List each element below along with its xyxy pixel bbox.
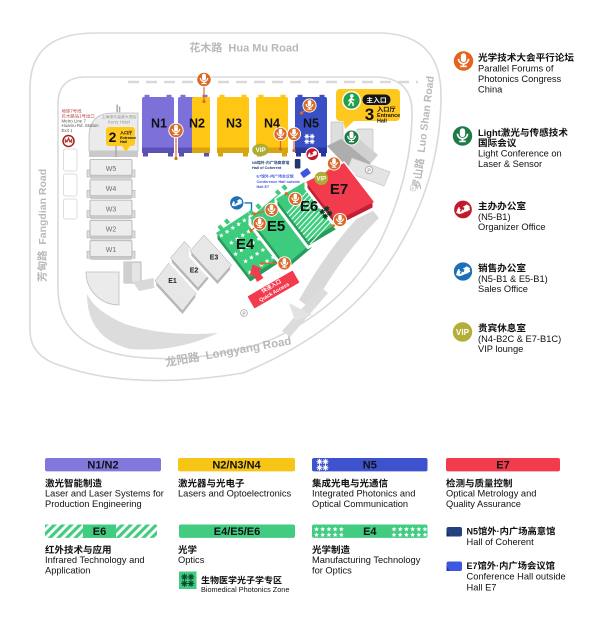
svg-text:(N5-B1 & E5-B1): (N5-B1 & E5-B1) — [478, 274, 548, 284]
svg-text:3: 3 — [365, 105, 374, 124]
svg-text:VIP: VIP — [456, 328, 470, 337]
svg-text:(N5-B1): (N5-B1) — [478, 212, 511, 222]
svg-text:N5: N5 — [252, 161, 257, 165]
svg-text:Hall of Coherent: Hall of Coherent — [467, 537, 535, 547]
svg-text:Laser & Sensor: Laser & Sensor — [478, 159, 542, 169]
svg-text:Fangdian Road: Fangdian Road — [37, 169, 49, 251]
svg-text:Photonics Congress: Photonics Congress — [478, 74, 562, 84]
svg-text:VIP: VIP — [256, 147, 266, 154]
svg-text:E4: E4 — [363, 526, 377, 538]
svg-text:Hall of Coherent: Hall of Coherent — [252, 166, 282, 170]
svg-text:E7: E7 — [467, 561, 478, 571]
svg-text:W5: W5 — [106, 166, 117, 173]
svg-text:E7: E7 — [257, 175, 262, 179]
svg-text:for Optics: for Optics — [312, 565, 352, 575]
svg-text:P: P — [412, 186, 415, 191]
svg-text:Sales Office: Sales Office — [478, 284, 528, 294]
svg-text:VIP lounge: VIP lounge — [478, 344, 523, 354]
svg-text:E1: E1 — [168, 278, 177, 285]
svg-text:Laser and Laser Systems for: Laser and Laser Systems for — [45, 489, 164, 499]
svg-text:W3: W3 — [106, 206, 117, 213]
svg-text:W1: W1 — [106, 247, 117, 254]
svg-text:·: · — [497, 526, 500, 536]
svg-text:W4: W4 — [106, 186, 117, 193]
svg-text:Quality Assurance: Quality Assurance — [446, 499, 521, 509]
svg-text:N5: N5 — [303, 117, 319, 131]
svg-text:E6: E6 — [300, 198, 318, 215]
svg-text:2: 2 — [109, 129, 117, 145]
svg-text:(N4-B2C & E7-B1C): (N4-B2C & E7-B1C) — [478, 334, 561, 344]
svg-text:Manufacturing Technology: Manufacturing Technology — [312, 555, 421, 565]
svg-text:Hall: Hall — [377, 119, 387, 125]
svg-text:Hall E7: Hall E7 — [257, 185, 270, 189]
svg-text:Optical Communication: Optical Communication — [312, 499, 408, 509]
svg-text:Optical Metrology and: Optical Metrology and — [446, 489, 536, 499]
svg-text:Light Conference on: Light Conference on — [478, 149, 562, 159]
svg-text:Organizer Office: Organizer Office — [478, 222, 546, 232]
svg-text:VIP: VIP — [316, 177, 326, 183]
svg-text:E7: E7 — [496, 460, 509, 472]
svg-text:E7: E7 — [330, 181, 348, 198]
svg-text:Conference Hall outside: Conference Hall outside — [467, 572, 566, 582]
svg-text:N1: N1 — [151, 117, 167, 131]
svg-text:Parallel Forums of: Parallel Forums of — [478, 64, 554, 74]
svg-text:E4: E4 — [236, 236, 255, 253]
svg-text:N3: N3 — [226, 117, 242, 131]
svg-text:Entrance: Entrance — [120, 136, 136, 140]
svg-text:Kerry Hotel: Kerry Hotel — [108, 119, 130, 124]
svg-text:Infrared Technology and: Infrared Technology and — [45, 555, 145, 565]
svg-text:Exit 1: Exit 1 — [62, 128, 74, 133]
svg-text:E3: E3 — [210, 255, 219, 262]
svg-text:Conference Hall outside: Conference Hall outside — [257, 180, 300, 184]
svg-text:Light: Light — [478, 128, 501, 138]
svg-text:N2/N3/N4: N2/N3/N4 — [212, 460, 261, 472]
svg-text:N2: N2 — [189, 117, 205, 131]
svg-text:E2: E2 — [190, 268, 199, 275]
svg-text:E4/E5/E6: E4/E5/E6 — [214, 526, 260, 538]
svg-text:·: · — [496, 561, 499, 571]
svg-text:Biomedical Photonics Zone: Biomedical Photonics Zone — [201, 585, 289, 594]
svg-text:W2: W2 — [106, 227, 117, 234]
svg-text:Integrated Photonics and: Integrated Photonics and — [312, 489, 415, 499]
svg-text:Lasers and Optoelectronics: Lasers and Optoelectronics — [178, 489, 292, 499]
svg-text:Hall: Hall — [120, 140, 127, 144]
svg-text:Hall E7: Hall E7 — [467, 583, 497, 593]
svg-text:·: · — [269, 175, 270, 179]
svg-text:Hua Mu Road: Hua Mu Road — [222, 43, 298, 55]
svg-text:P: P — [367, 169, 371, 175]
svg-text:N5: N5 — [467, 526, 479, 536]
svg-text:E5: E5 — [267, 218, 285, 235]
svg-text:·: · — [265, 161, 266, 165]
svg-text:China: China — [478, 84, 503, 94]
svg-text:N1/N2: N1/N2 — [87, 460, 118, 472]
svg-text:Application: Application — [45, 565, 90, 575]
svg-text:N5: N5 — [363, 460, 377, 472]
svg-text:Production Engineering: Production Engineering — [45, 499, 142, 509]
svg-text:Optics: Optics — [178, 555, 205, 565]
svg-text:E6: E6 — [93, 526, 106, 538]
